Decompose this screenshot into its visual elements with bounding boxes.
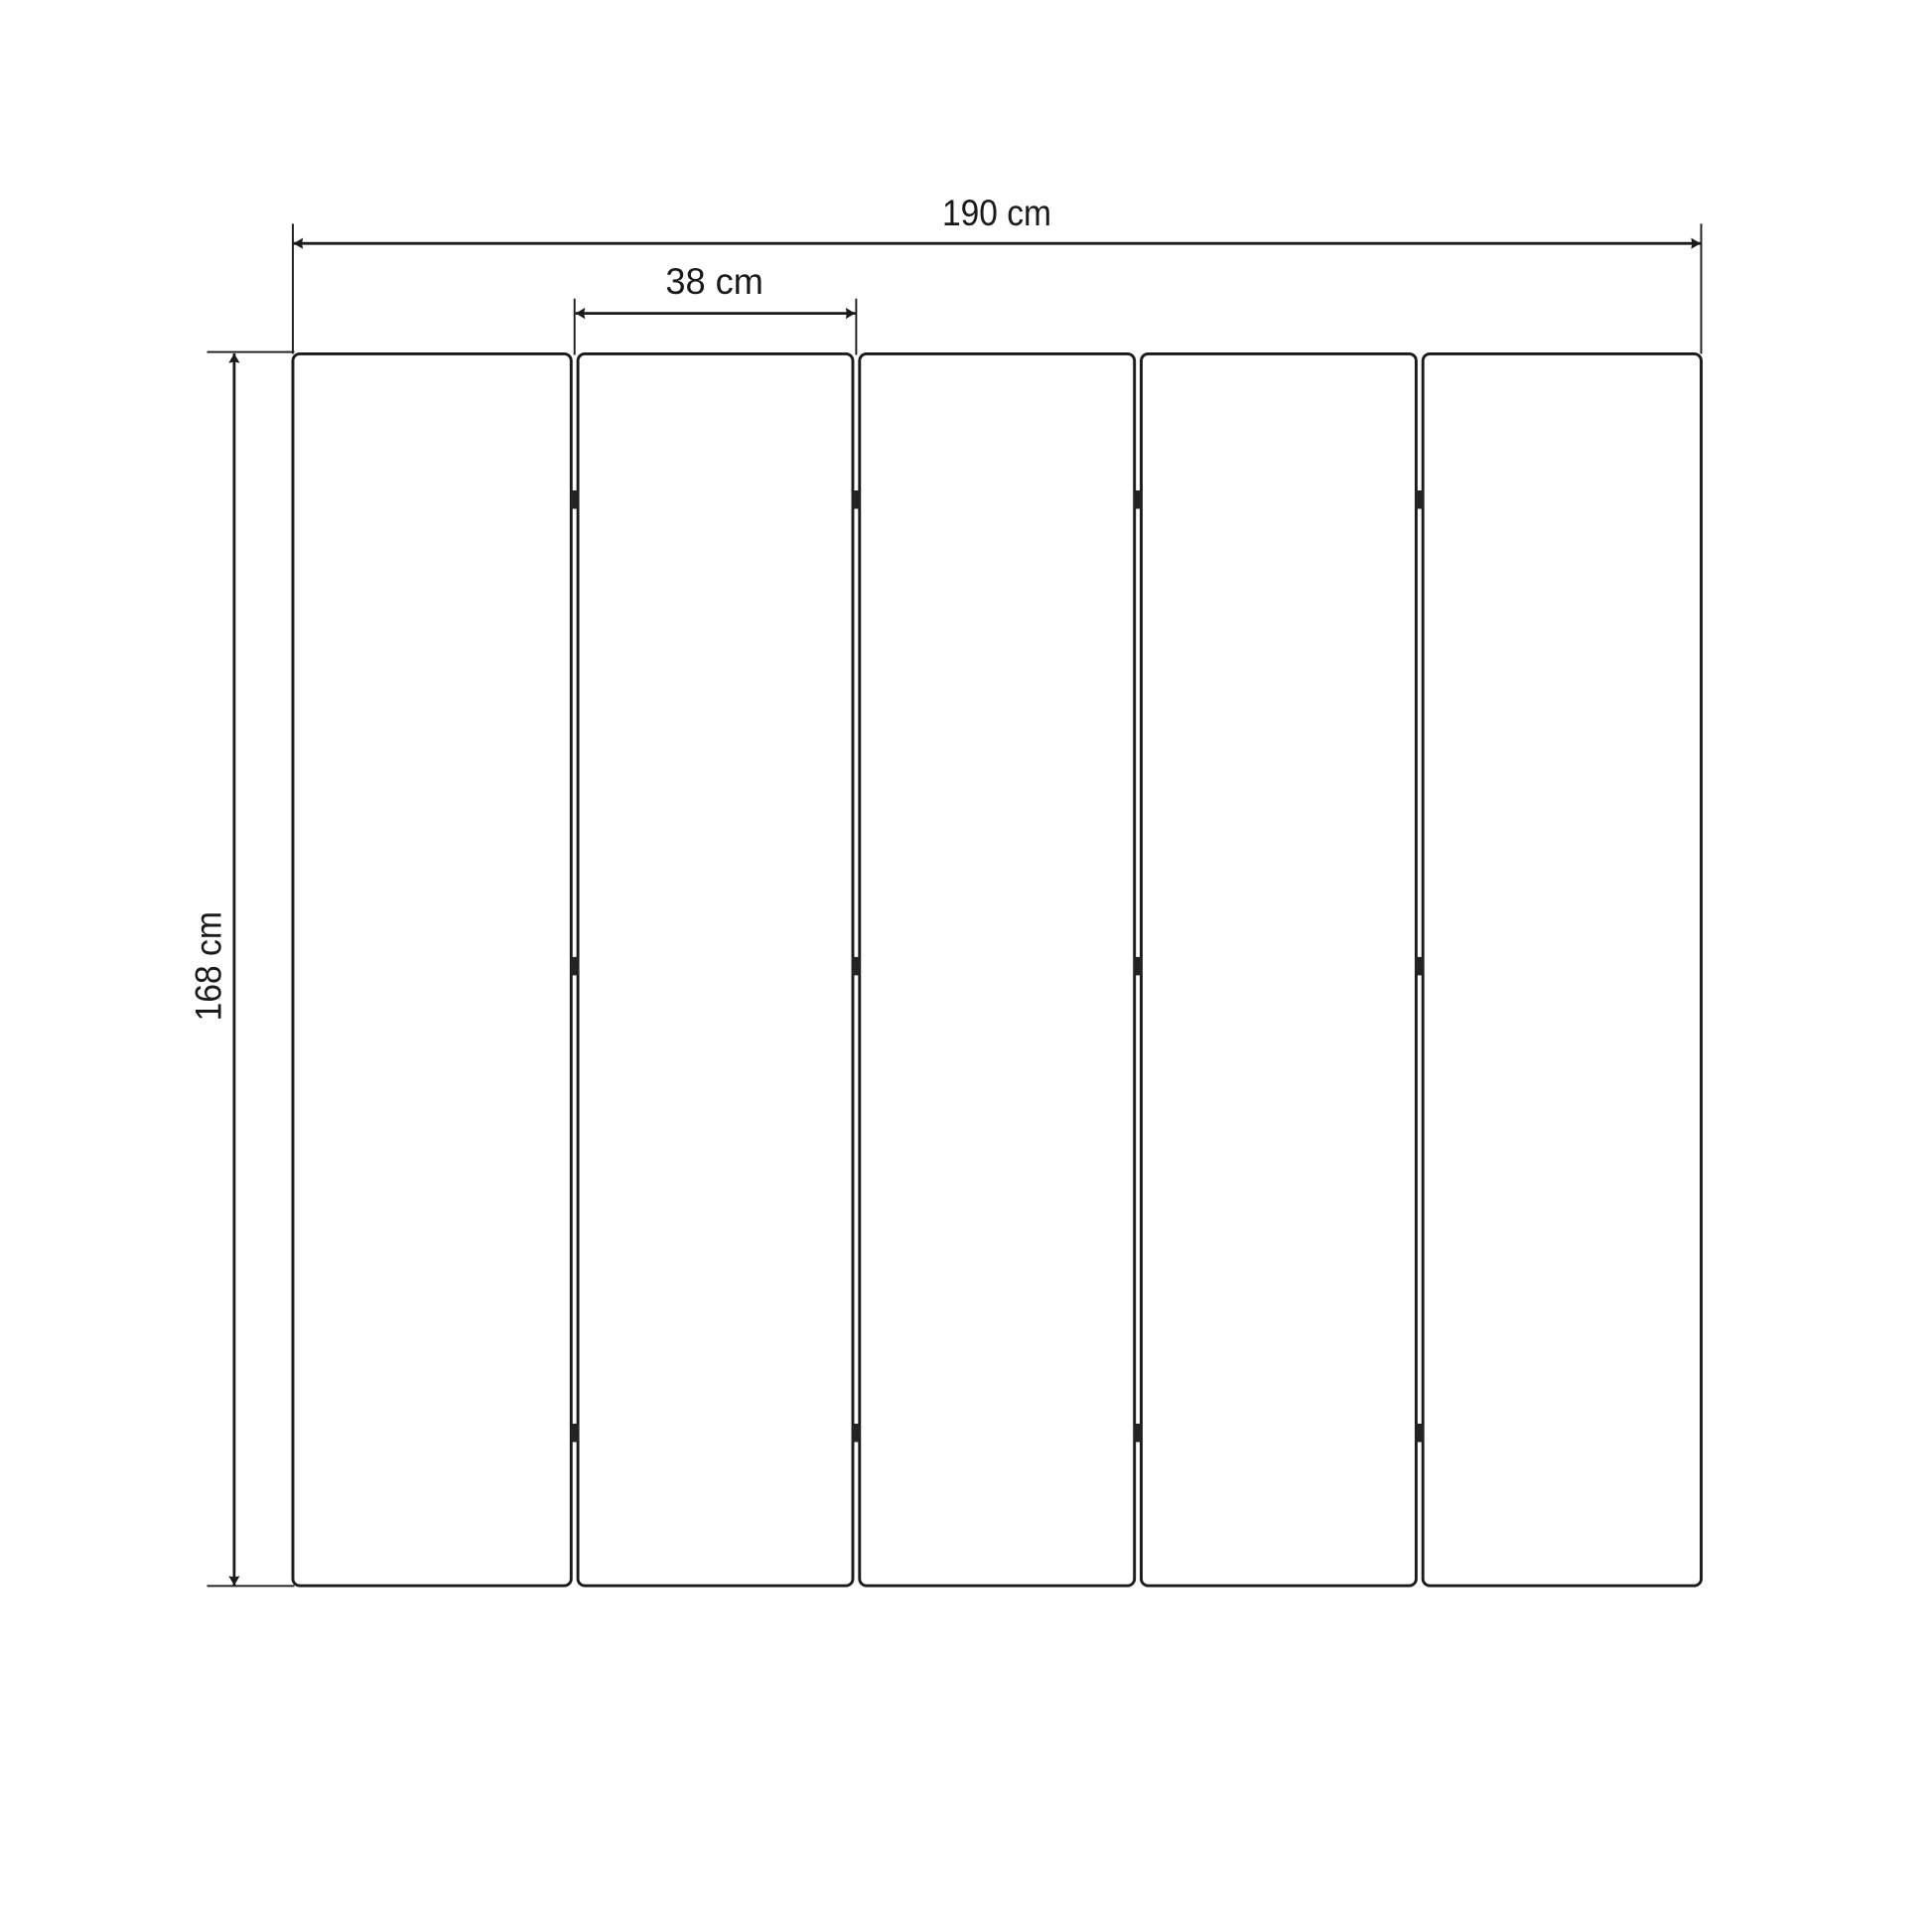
svg-text:168 cm: 168 cm <box>189 911 229 1022</box>
svg-text:190 cm: 190 cm <box>942 193 1051 233</box>
svg-text:38 cm: 38 cm <box>665 261 763 302</box>
